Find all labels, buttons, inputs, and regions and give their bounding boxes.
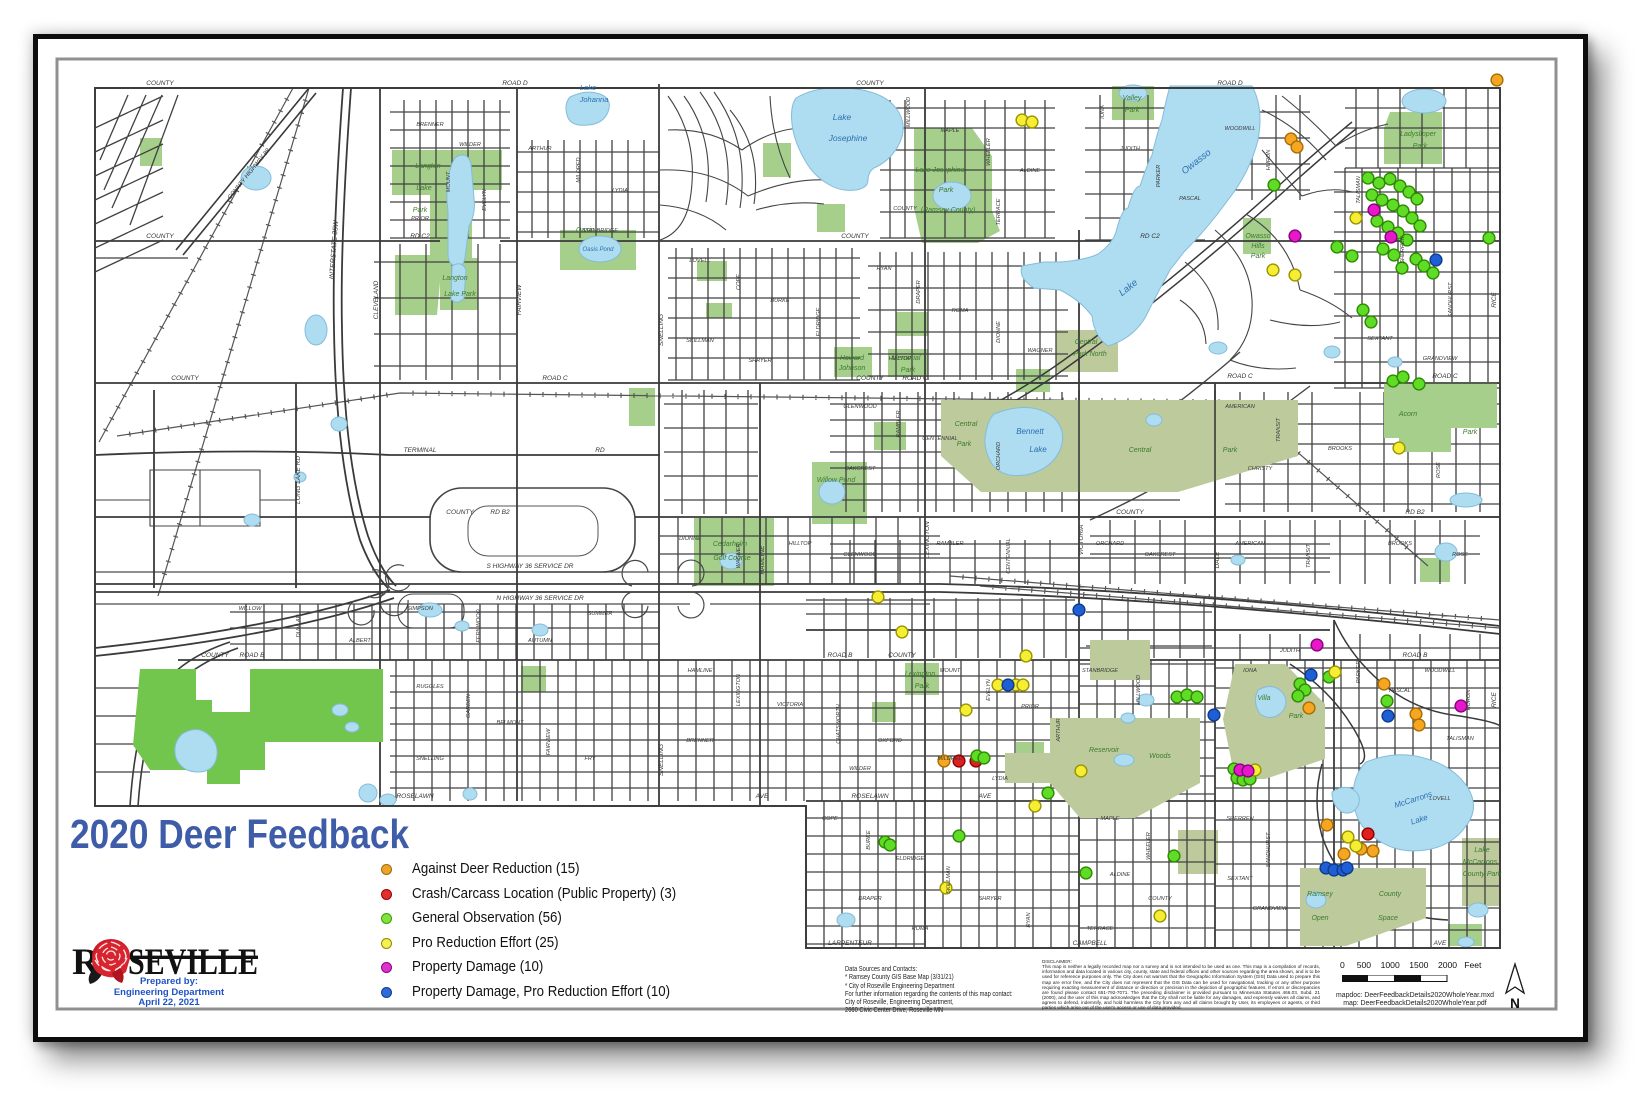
svg-text:ROSELAWN: ROSELAWN <box>396 793 433 800</box>
svg-text:ROSE: ROSE <box>1436 462 1442 478</box>
svg-text:Central: Central <box>1129 447 1152 454</box>
svg-text:LOVELL: LOVELL <box>1429 796 1450 802</box>
svg-text:GRANDVIEW: GRANDVIEW <box>1423 356 1458 362</box>
svg-text:WAGNER: WAGNER <box>1027 348 1052 354</box>
svg-text:ROSELAWN: ROSELAWN <box>851 793 888 800</box>
svg-text:Reservoir: Reservoir <box>1089 747 1120 754</box>
svg-text:LEXINGTON: LEXINGTON <box>924 521 931 559</box>
svg-text:MOUNT: MOUNT <box>446 171 452 192</box>
svg-text:DIONNE: DIONNE <box>679 536 701 542</box>
svg-text:N HIGHWAY 36 SERVICE DR: N HIGHWAY 36 SERVICE DR <box>496 595 584 602</box>
svg-text:County Park: County Park <box>1463 871 1502 878</box>
svg-text:LYDIA: LYDIA <box>612 188 628 194</box>
svg-text:DIONNE: DIONNE <box>996 321 1002 343</box>
svg-text:RAMBLER: RAMBLER <box>936 541 963 547</box>
svg-text:WHEELER: WHEELER <box>1146 832 1152 860</box>
svg-text:TRANSIT: TRANSIT <box>1306 543 1312 568</box>
svg-text:OXFORD: OXFORD <box>878 738 902 744</box>
svg-text:VICTORIA: VICTORIA <box>1078 525 1085 556</box>
svg-text:Willow Pond: Willow Pond <box>817 477 857 484</box>
svg-text:AVE: AVE <box>1433 940 1447 947</box>
svg-text:GLENWOOD: GLENWOOD <box>843 404 876 410</box>
svg-text:MOUNT: MOUNT <box>940 668 961 674</box>
svg-text:SUMMER: SUMMER <box>588 611 613 617</box>
svg-text:Space: Space <box>1378 915 1398 922</box>
svg-text:DRAPER: DRAPER <box>916 280 922 303</box>
svg-text:MILLWOOD: MILLWOOD <box>1136 675 1142 705</box>
svg-text:MAPLE: MAPLE <box>941 128 960 134</box>
svg-text:RD C2: RD C2 <box>1140 233 1160 240</box>
svg-text:JUDITH: JUDITH <box>1119 146 1141 152</box>
svg-text:RICE: RICE <box>1491 692 1498 708</box>
svg-text:TERMINAL: TERMINAL <box>404 447 437 454</box>
svg-text:Johnson: Johnson <box>838 365 866 372</box>
svg-text:WOODWILL: WOODWILL <box>1424 668 1455 674</box>
svg-text:FERNWOOD: FERNWOOD <box>476 609 482 642</box>
svg-text:CHATSWORTH: CHATSWORTH <box>836 703 842 744</box>
svg-text:COUNTY: COUNTY <box>888 652 916 659</box>
svg-text:Park: Park <box>901 367 916 374</box>
svg-text:IONA: IONA <box>1100 105 1106 119</box>
svg-text:BURKE: BURKE <box>866 830 872 850</box>
svg-text:Park: Park <box>1125 107 1140 114</box>
svg-text:COUNTY: COUNTY <box>146 233 174 240</box>
svg-text:MAPLE: MAPLE <box>1101 816 1120 822</box>
svg-text:Lexington: Lexington <box>905 671 935 678</box>
svg-text:TERRACE: TERRACE <box>996 198 1002 225</box>
svg-text:Woods: Woods <box>1149 753 1171 760</box>
svg-text:MILDRED: MILDRED <box>576 157 582 182</box>
svg-text:Lake Park: Lake Park <box>444 291 476 298</box>
svg-text:LEXINGTON: LEXINGTON <box>736 673 742 706</box>
svg-text:SEXTANT: SEXTANT <box>1227 876 1253 882</box>
svg-text:ELDRIDGE: ELDRIDGE <box>816 307 822 336</box>
svg-text:DRAPER: DRAPER <box>858 896 881 902</box>
svg-text:AVE: AVE <box>755 793 769 800</box>
svg-text:WILDER: WILDER <box>459 142 481 148</box>
svg-text:LONG LAKE RD: LONG LAKE RD <box>295 456 302 504</box>
svg-text:RICE: RICE <box>1491 292 1498 308</box>
svg-text:Golf Course: Golf Course <box>713 555 750 562</box>
svg-text:PARKER: PARKER <box>1356 661 1362 684</box>
svg-text:SEXTANT: SEXTANT <box>1367 336 1393 342</box>
svg-text:AMERICAN: AMERICAN <box>1234 541 1265 547</box>
svg-text:HURON: HURON <box>1466 689 1472 710</box>
svg-text:COUNTY: COUNTY <box>171 375 199 382</box>
svg-text:ROAD D: ROAD D <box>502 80 528 87</box>
svg-text:SNELLING: SNELLING <box>658 744 665 776</box>
svg-text:ROAD D: ROAD D <box>1217 80 1243 87</box>
svg-text:Park North: Park North <box>1073 351 1107 358</box>
svg-text:CHRISTY: CHRISTY <box>1248 466 1274 472</box>
svg-text:Open: Open <box>1311 915 1328 922</box>
svg-text:SKILLMAN: SKILLMAN <box>686 338 715 344</box>
svg-text:Langton: Langton <box>442 275 467 282</box>
svg-text:McCarrons: McCarrons <box>1463 859 1498 866</box>
svg-text:ELDRIDGE: ELDRIDGE <box>896 856 925 862</box>
svg-text:Howard: Howard <box>840 355 865 362</box>
svg-text:ROMA: ROMA <box>952 308 969 314</box>
svg-text:DALE: DALE <box>1214 551 1221 569</box>
svg-text:Ladyslipper: Ladyslipper <box>1400 131 1436 138</box>
svg-text:COUNTY: COUNTY <box>201 652 229 659</box>
svg-text:HURON: HURON <box>1266 149 1272 170</box>
svg-text:ORCHARD: ORCHARD <box>996 442 1002 470</box>
svg-text:COUNTY: COUNTY <box>146 80 174 87</box>
svg-text:Park: Park <box>1223 447 1238 454</box>
svg-text:ROAD C: ROAD C <box>1227 373 1253 380</box>
svg-text:ROSE: ROSE <box>1452 552 1468 558</box>
svg-text:Bennett: Bennett <box>1016 427 1044 436</box>
svg-text:Park: Park <box>915 683 930 690</box>
svg-text:Lake: Lake <box>580 83 596 92</box>
svg-text:TALISMAN: TALISMAN <box>1446 736 1475 742</box>
svg-text:HILLTOP: HILLTOP <box>789 541 812 547</box>
svg-text:OAKCREST: OAKCREST <box>845 466 876 472</box>
svg-text:MILLWOOD: MILLWOOD <box>906 97 912 127</box>
svg-text:COPE: COPE <box>822 816 838 822</box>
svg-text:CENTENNIAL: CENTENNIAL <box>1006 538 1012 573</box>
svg-text:BRENNER: BRENNER <box>416 122 443 128</box>
svg-text:PASCAL: PASCAL <box>1179 196 1201 202</box>
svg-text:RD: RD <box>595 447 605 454</box>
svg-text:GLENWOOD: GLENWOOD <box>843 552 876 558</box>
svg-text:Park: Park <box>1413 143 1428 150</box>
svg-text:ROAD B: ROAD B <box>828 652 854 659</box>
svg-text:MILDRED: MILDRED <box>937 756 962 762</box>
svg-text:SNELLING: SNELLING <box>416 756 444 762</box>
svg-text:COUNTY: COUNTY <box>446 509 474 516</box>
svg-text:Lake: Lake <box>1029 445 1047 454</box>
svg-text:SANDHURST: SANDHURST <box>1448 282 1454 317</box>
svg-text:WOODWILL: WOODWILL <box>1224 126 1255 132</box>
svg-text:EVELYN: EVELYN <box>986 678 992 701</box>
svg-text:TRANSIT: TRANSIT <box>1276 417 1282 442</box>
svg-text:PRIOR: PRIOR <box>411 216 429 222</box>
svg-text:ARTHUR: ARTHUR <box>1056 718 1062 742</box>
svg-text:STANBRIDGE: STANBRIDGE <box>582 228 618 234</box>
svg-text:RD B2: RD B2 <box>1405 509 1425 516</box>
svg-text:Oasis Pond: Oasis Pond <box>582 247 614 253</box>
svg-text:BELMONT: BELMONT <box>496 720 524 726</box>
svg-text:RYAN: RYAN <box>876 266 892 272</box>
svg-text:HAMLINE: HAMLINE <box>759 545 766 575</box>
svg-text:Lake: Lake <box>1474 847 1489 854</box>
svg-text:Park: Park <box>1463 429 1478 436</box>
svg-text:Villa: Villa <box>1257 695 1270 702</box>
svg-text:Owasso: Owasso <box>1245 233 1270 240</box>
svg-text:N: N <box>1510 996 1520 1011</box>
svg-text:ARTHUR: ARTHUR <box>527 146 551 152</box>
svg-text:ALBERT: ALBERT <box>348 638 371 644</box>
svg-text:AMERICAN: AMERICAN <box>1224 404 1255 410</box>
svg-text:Valley: Valley <box>1123 95 1142 102</box>
svg-text:BURKE: BURKE <box>770 298 790 304</box>
svg-text:COUNTY: COUNTY <box>841 233 869 240</box>
svg-text:LARPENTEUR: LARPENTEUR <box>828 940 872 947</box>
svg-text:ALDINE: ALDINE <box>1109 872 1130 878</box>
svg-text:Lake: Lake <box>833 112 852 122</box>
svg-text:AUTUMN: AUTUMN <box>527 638 553 644</box>
svg-text:Park: Park <box>1289 713 1304 720</box>
svg-text:ORCHARD: ORCHARD <box>1096 541 1124 547</box>
svg-text:Josephine: Josephine <box>828 133 868 143</box>
svg-text:FAIRVIEW: FAIRVIEW <box>546 728 552 755</box>
svg-text:FRY: FRY <box>585 756 597 762</box>
svg-text:SHERREN: SHERREN <box>1400 235 1406 263</box>
svg-text:ROMA: ROMA <box>912 926 929 932</box>
svg-text:Cedarholm: Cedarholm <box>713 541 747 548</box>
svg-text:SHERREN: SHERREN <box>1226 816 1254 822</box>
svg-text:Lake Josephine: Lake Josephine <box>915 167 964 174</box>
svg-text:HILLTOP: HILLTOP <box>889 356 912 362</box>
svg-text:BRENNER: BRENNER <box>686 738 713 744</box>
svg-text:Central: Central <box>955 421 978 428</box>
svg-text:COUNTY: COUNTY <box>856 375 884 382</box>
svg-text:S HIGHWAY 36 SERVICE DR: S HIGHWAY 36 SERVICE DR <box>487 563 574 570</box>
svg-text:SHRYER: SHRYER <box>748 358 771 364</box>
svg-text:RYAN: RYAN <box>1026 912 1032 928</box>
svg-text:ROAD C: ROAD C <box>902 375 928 382</box>
svg-text:LOVELL: LOVELL <box>689 258 710 264</box>
svg-text:(Ramsey County): (Ramsey County) <box>921 207 975 214</box>
svg-text:JUDITH: JUDITH <box>1279 648 1301 654</box>
svg-text:CAMPBELL: CAMPBELL <box>1073 940 1108 947</box>
svg-text:HAMLINE: HAMLINE <box>688 668 713 674</box>
svg-text:AVE: AVE <box>978 793 992 800</box>
svg-text:CENTENNIAL: CENTENNIAL <box>922 436 957 442</box>
svg-text:TALISMAN: TALISMAN <box>1356 175 1362 204</box>
svg-text:RD C2: RD C2 <box>410 233 430 240</box>
svg-text:IONA: IONA <box>1243 668 1257 674</box>
svg-text:GRANDVIEW: GRANDVIEW <box>1253 906 1288 912</box>
svg-text:STANBRIDGE: STANBRIDGE <box>1082 668 1118 674</box>
svg-text:Johanna: Johanna <box>579 95 609 104</box>
svg-text:BROOKS: BROOKS <box>1388 541 1412 547</box>
svg-text:COUNTY: COUNTY <box>856 80 884 87</box>
svg-text:SANDHURST: SANDHURST <box>1266 832 1272 867</box>
svg-text:OAKCREST: OAKCREST <box>1145 552 1176 558</box>
svg-text:Park: Park <box>1251 253 1266 260</box>
svg-text:Park: Park <box>939 187 954 194</box>
svg-text:Langton: Langton <box>415 163 440 170</box>
svg-text:ALDINE: ALDINE <box>1019 168 1040 174</box>
svg-text:EVELYN: EVELYN <box>482 188 488 211</box>
svg-text:RUGGLES: RUGGLES <box>416 684 444 690</box>
svg-text:RAMBLER: RAMBLER <box>896 410 902 437</box>
svg-text:SHRYER: SHRYER <box>978 896 1001 902</box>
svg-text:Hills: Hills <box>1251 243 1265 250</box>
svg-text:CLEVELAND: CLEVELAND <box>373 280 380 319</box>
svg-text:GARDEN: GARDEN <box>466 693 472 718</box>
svg-text:PRIOR: PRIOR <box>1021 704 1039 710</box>
svg-text:COUNTY: COUNTY <box>1148 896 1173 902</box>
svg-text:VICTORIA: VICTORIA <box>777 702 804 708</box>
svg-text:WHEELER: WHEELER <box>986 138 992 166</box>
svg-text:LYDIA: LYDIA <box>992 776 1008 782</box>
svg-text:COPE: COPE <box>736 274 742 290</box>
svg-text:PASCAL: PASCAL <box>1389 688 1411 694</box>
svg-text:RD B2: RD B2 <box>490 509 510 516</box>
svg-text:Park: Park <box>413 207 428 214</box>
svg-text:Central: Central <box>1075 339 1098 346</box>
svg-text:WILLOW: WILLOW <box>239 606 262 612</box>
svg-text:Acorn: Acorn <box>1398 411 1417 418</box>
svg-text:SIMPSON: SIMPSON <box>407 606 434 612</box>
svg-text:Park: Park <box>957 441 972 448</box>
svg-text:SNELLING: SNELLING <box>658 314 665 346</box>
svg-text:SKILLMAN: SKILLMAN <box>946 865 952 894</box>
svg-text:FAIRVIEW: FAIRVIEW <box>516 284 523 316</box>
svg-text:ROAD B: ROAD B <box>1403 652 1429 659</box>
svg-text:ROAD C: ROAD C <box>1432 373 1458 380</box>
svg-text:DUNLAP: DUNLAP <box>296 614 302 637</box>
svg-text:PARKER: PARKER <box>1156 165 1162 188</box>
svg-text:ROAD B: ROAD B <box>240 652 266 659</box>
svg-text:WAGNER: WAGNER <box>736 543 742 568</box>
svg-text:WILDER: WILDER <box>849 766 871 772</box>
svg-text:TERRACE: TERRACE <box>1087 926 1114 932</box>
svg-text:Ramsey: Ramsey <box>1307 891 1333 898</box>
svg-text:COUNTY: COUNTY <box>1116 509 1144 516</box>
svg-text:Lake: Lake <box>416 185 431 192</box>
svg-text:BROOKS: BROOKS <box>1328 446 1352 452</box>
svg-text:ROAD C: ROAD C <box>542 375 568 382</box>
svg-text:COUNTY: COUNTY <box>893 206 918 212</box>
svg-text:County: County <box>1379 891 1402 898</box>
